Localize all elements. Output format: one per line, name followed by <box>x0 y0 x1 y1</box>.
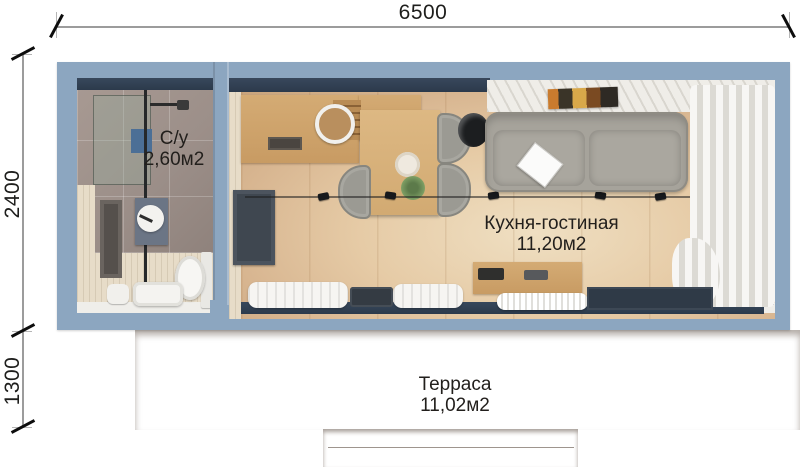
bathroom-name: С/у <box>134 128 214 149</box>
shower-frame-post <box>144 90 147 288</box>
round-mirror <box>137 205 164 232</box>
north-wall <box>229 78 490 92</box>
bathroom-area: 2,60м2 <box>134 149 214 170</box>
shower-stool <box>133 282 183 306</box>
plate <box>395 152 420 177</box>
round-sink <box>315 104 355 144</box>
partition-door-jamb <box>210 300 223 318</box>
dimension-depth-terrace-label: 1300 <box>1 346 25 416</box>
step-edge <box>328 447 574 448</box>
wall-art <box>548 87 619 109</box>
bathroom <box>77 78 213 313</box>
cooktop <box>268 137 302 150</box>
kitchen-living-name: Кухня-гостиная <box>459 213 644 234</box>
console-item <box>478 268 504 280</box>
tv-panel <box>233 190 275 265</box>
spotlight <box>385 191 397 199</box>
sofa <box>485 112 688 192</box>
dimension-depth-main-label: 2400 <box>1 159 25 229</box>
wall-niche <box>100 200 122 278</box>
kitchen-living-area: 11,20м2 <box>459 234 644 255</box>
partition-wall <box>213 62 229 305</box>
floor-plan-canvas: 6500 2400 1300 <box>0 0 800 474</box>
terrace-side-strip <box>789 93 800 330</box>
light-track-cable <box>245 196 720 198</box>
terrace-label: Терраса 11,02м2 <box>385 374 525 416</box>
dimension-line-top <box>57 26 790 28</box>
sofa-cushion <box>589 130 681 186</box>
storage-basket <box>107 284 129 304</box>
window-glass-south <box>587 287 713 310</box>
media-console <box>473 262 582 294</box>
shower-head <box>177 100 189 110</box>
bathroom-top-wall <box>77 78 213 90</box>
window-bench <box>350 287 393 307</box>
dimension-width-label: 6500 <box>363 1 483 25</box>
kitchen-living-room <box>229 78 775 319</box>
terrace-step <box>323 429 578 467</box>
curtain-pile <box>248 282 348 308</box>
bathroom-wall-panel <box>77 185 95 302</box>
faucet <box>139 214 153 223</box>
building-module <box>57 62 790 330</box>
bathroom-label: С/у 2,60м2 <box>134 128 214 170</box>
console-tray <box>524 270 548 280</box>
curtain-pile <box>393 284 463 308</box>
kitchen-living-label: Кухня-гостиная 11,20м2 <box>459 213 644 255</box>
terrace-area: 11,02м2 <box>385 395 525 416</box>
ac-unit <box>497 293 588 310</box>
terrace-name: Терраса <box>385 374 525 395</box>
